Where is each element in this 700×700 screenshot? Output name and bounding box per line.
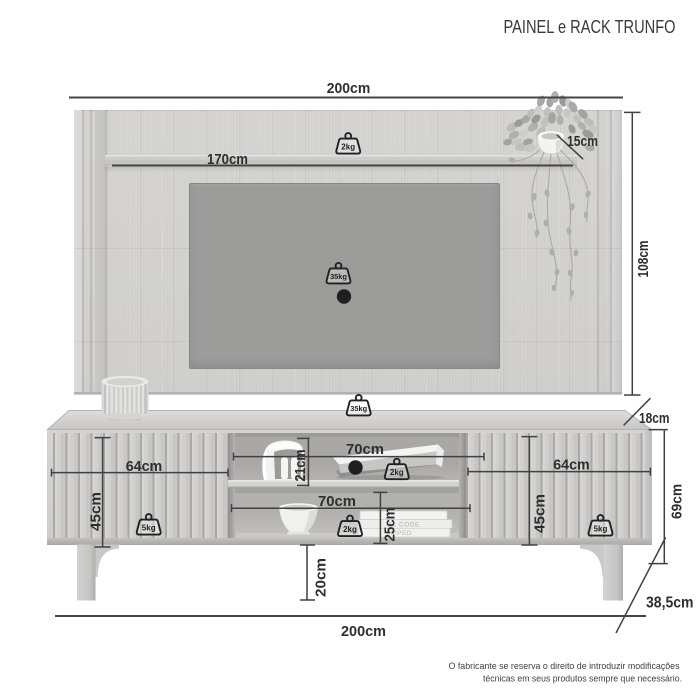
- svg-text:38,5cm: 38,5cm: [646, 595, 694, 612]
- svg-text:20cm: 20cm: [313, 558, 330, 597]
- svg-text:45cm: 45cm: [88, 492, 105, 531]
- svg-text:35kg: 35kg: [350, 404, 367, 413]
- svg-text:69cm: 69cm: [669, 484, 686, 519]
- svg-text:70cm: 70cm: [318, 493, 356, 510]
- svg-text:15cm: 15cm: [567, 133, 598, 150]
- svg-text:64cm: 64cm: [126, 458, 163, 475]
- svg-text:200cm: 200cm: [327, 80, 371, 97]
- svg-text:170cm: 170cm: [207, 151, 248, 168]
- svg-text:2kg: 2kg: [341, 142, 355, 151]
- svg-text:64cm: 64cm: [553, 456, 590, 473]
- svg-text:O fabricante se reserva o dire: O fabricante se reserva o direito de int…: [449, 661, 680, 671]
- svg-text:18cm: 18cm: [639, 410, 670, 427]
- svg-text:5kg: 5kg: [142, 523, 156, 532]
- svg-text:25cm: 25cm: [381, 508, 398, 542]
- svg-text:45cm: 45cm: [532, 494, 549, 533]
- svg-text:5kg: 5kg: [594, 524, 608, 533]
- svg-text:2kg: 2kg: [343, 525, 357, 534]
- svg-text:108cm: 108cm: [635, 241, 652, 278]
- svg-text:70cm: 70cm: [346, 441, 384, 458]
- svg-text:21cm: 21cm: [292, 450, 309, 482]
- svg-text:técnicas em seus produtos semp: técnicas em seus produtos sempre que nec…: [483, 673, 682, 683]
- svg-text:35kg: 35kg: [330, 272, 347, 281]
- svg-text:PAINEL e RACK TRUNFO: PAINEL e RACK TRUNFO: [504, 16, 676, 37]
- svg-text:200cm: 200cm: [341, 623, 386, 640]
- svg-text:2kg: 2kg: [390, 468, 404, 477]
